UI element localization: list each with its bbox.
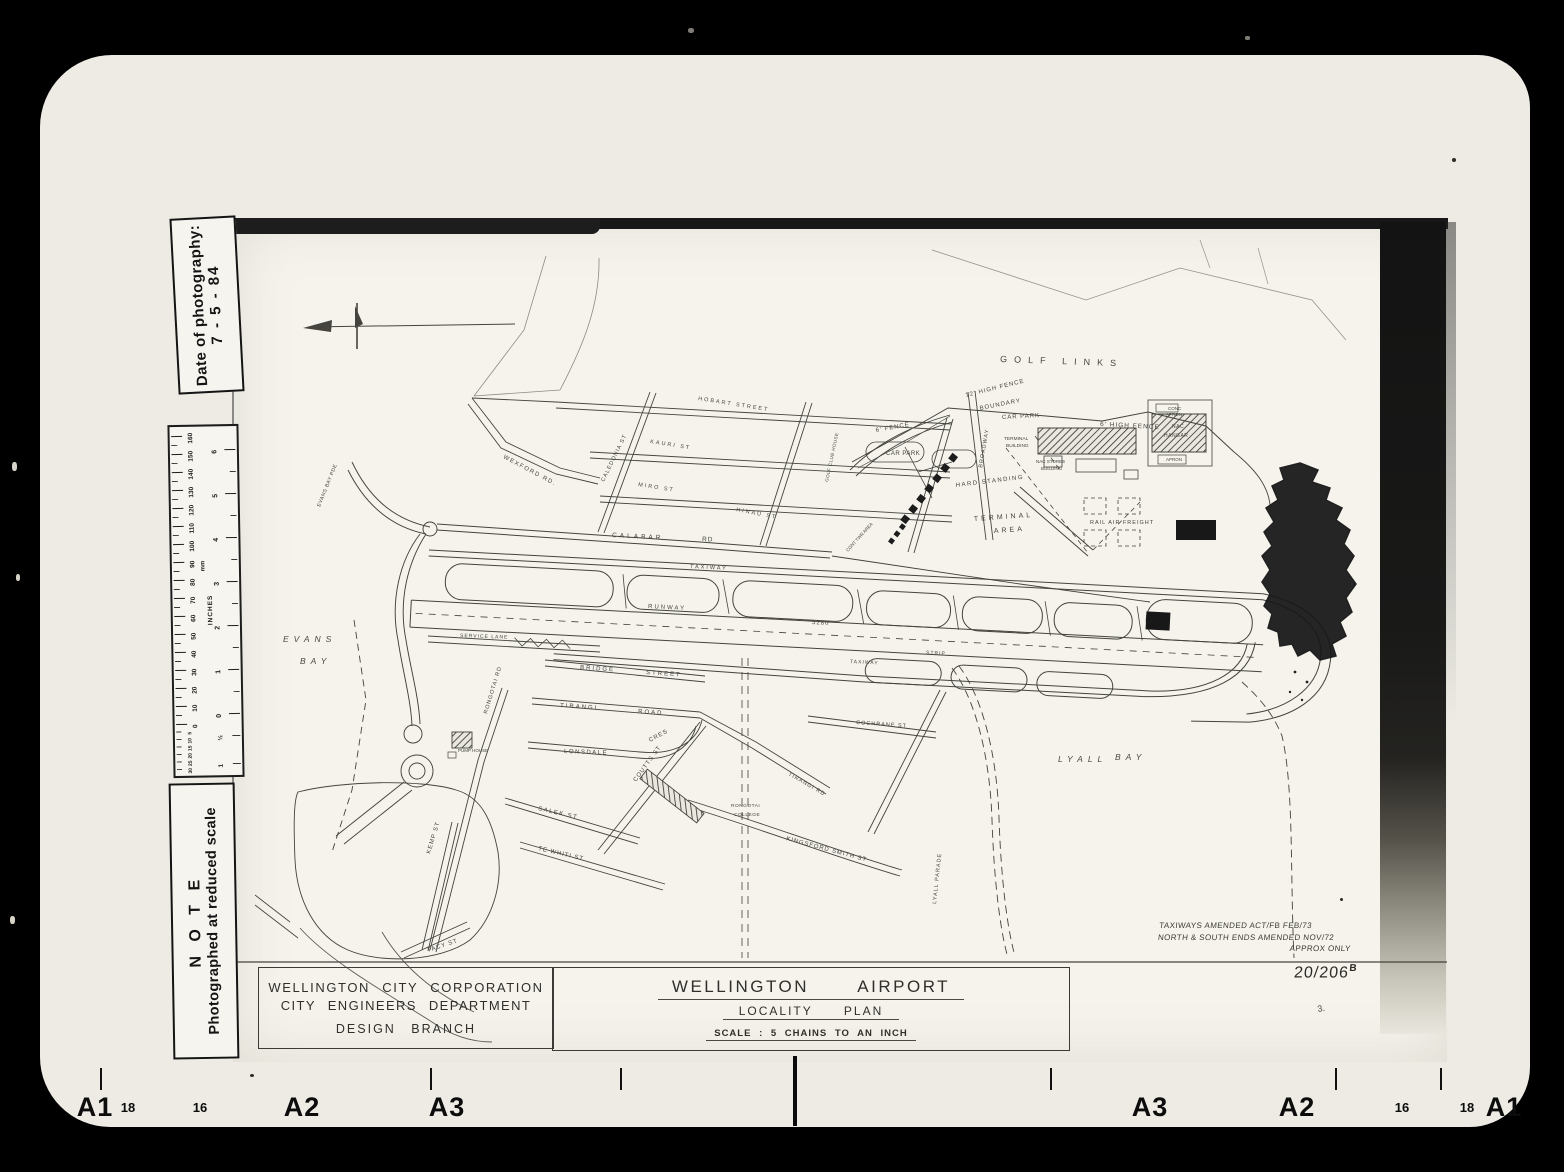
map-label: EVANS (283, 634, 336, 644)
map-label: BUILDING (1041, 466, 1063, 471)
amendment-notes: TAXIWAYS AMENDED ACT/FB FEB/73 NORTH & S… (1156, 920, 1380, 955)
map-label: 3. (1317, 1003, 1326, 1014)
map-label: HANGAR (1164, 433, 1188, 439)
svg-text:50: 50 (191, 632, 198, 640)
drawing-number-revision: B (1349, 963, 1358, 974)
svg-text:6: 6 (211, 450, 218, 454)
map-label: RD (702, 536, 714, 544)
edge-marker-a3: A3 (429, 1092, 466, 1123)
svg-text:120: 120 (188, 504, 195, 515)
fiducial-tick (1050, 1068, 1052, 1090)
drawing-number-main: 20/206 (1293, 964, 1349, 981)
fiducial-tick (620, 1068, 622, 1090)
amendment-note-3: APPROX ONLY (1156, 943, 1377, 955)
film-speck (12, 462, 17, 471)
terminal-area (832, 400, 1270, 631)
scan-speck (1452, 158, 1456, 162)
map-label: CONC (1168, 406, 1182, 411)
map-label: STREET (646, 670, 682, 678)
date-of-photography-sticker: Date of photography: 7 - 5 - 84 (169, 215, 244, 394)
map-label: CAR PARK (886, 451, 920, 457)
note-sticker-text: Photographed at reduced scale (203, 785, 224, 1057)
map-label: CRES (648, 729, 669, 744)
map-label: GOLF LINKS (1000, 354, 1123, 368)
map-label: CONT TWR AREA (845, 522, 874, 553)
svg-text:mm: mm (200, 561, 206, 572)
film-speck (1245, 36, 1250, 40)
film-speck (688, 28, 694, 33)
map-label: PUMP HOUSE (458, 748, 488, 753)
scan-speck (250, 1074, 254, 1077)
runway-taxiways (407, 549, 1334, 728)
film-speck (16, 574, 20, 581)
drawing-number: 20/206B (1293, 963, 1358, 982)
svg-text:60: 60 (190, 614, 197, 622)
map-label: ROAD (638, 709, 664, 717)
map-label: KINGSFORD SMITH ST (785, 836, 867, 863)
map-label: TERMINAL (1004, 436, 1029, 442)
map-label: MIRO ST (638, 482, 675, 494)
map-label: RUNWAY (648, 604, 686, 612)
map-label: AREA (994, 526, 1025, 535)
svg-text:20: 20 (191, 686, 198, 694)
map-label: RONGOTAI (731, 803, 760, 809)
amendment-note-2: NORTH & SOUTH ENDS AMENDED NOV/72 (1157, 932, 1378, 944)
map-label: KAURI ST (650, 439, 692, 451)
map-label: RONGOTAI RD (483, 666, 503, 715)
svg-text:130: 130 (188, 486, 195, 497)
map-label: TIRANGI (560, 703, 599, 712)
svg-text:110: 110 (189, 523, 196, 534)
svg-text:1: 1 (215, 670, 222, 674)
svg-text:2: 2 (214, 626, 221, 630)
edge-marker-16: 16 (193, 1100, 207, 1115)
svg-text:3: 3 (214, 582, 221, 586)
note-sticker: N O T E Photographed at reduced scale (169, 782, 240, 1059)
title-block-title: WELLINGTON AIRPORT LOCALITY PLAN SCALE :… (552, 967, 1070, 1051)
film-speck (10, 916, 15, 924)
svg-text:1: 1 (218, 764, 225, 768)
scan-speck (1340, 898, 1343, 901)
map-label: HARD STANDING (956, 475, 1025, 489)
ruler-graphic: 1601501401301201101009080706050403020100… (167, 423, 245, 778)
map-label: NAC (1172, 424, 1184, 430)
svg-text:140: 140 (188, 468, 195, 479)
svg-text:70: 70 (190, 596, 197, 604)
svg-text:40: 40 (191, 650, 198, 658)
map-label: APRON (1166, 457, 1182, 462)
map-label: LYALL (1058, 754, 1107, 764)
svg-text:4: 4 (213, 538, 220, 542)
map-label: BUILDING (1006, 443, 1029, 449)
drawing-title: WELLINGTON AIRPORT (658, 977, 964, 1000)
edge-marker-a3: A3 (1132, 1092, 1169, 1123)
svg-text:100: 100 (189, 540, 196, 551)
amendment-note-1: TAXIWAYS AMENDED ACT/FB FEB/73 (1159, 920, 1380, 932)
coast-outline-ne (932, 240, 1346, 340)
edge-marker-18: 18 (121, 1100, 135, 1115)
svg-text:25: 25 (188, 760, 194, 766)
org-line-2: CITY ENGINEERS DEPARTMENT (281, 998, 532, 1013)
map-label: TIRANGI RD (787, 772, 826, 798)
map-label: BAY (300, 656, 331, 666)
fiducial-tick (1440, 1068, 1442, 1090)
map-labels-layer: GOLF LINKS12' HIGH FENCEBOUNDARYCAR PARK… (283, 354, 1326, 1014)
map-label: 12' HIGH FENCE (965, 378, 1025, 398)
svg-text:150: 150 (187, 450, 194, 461)
svg-text:5: 5 (187, 732, 193, 735)
svg-text:80: 80 (190, 578, 197, 586)
map-label: TAXIWAY (850, 659, 879, 666)
edge-marker-a2: A2 (284, 1092, 321, 1123)
drawing-subtitle: LOCALITY PLAN (723, 1004, 899, 1020)
map-label: COCHRANE ST (856, 720, 907, 730)
map-label: KEMP ST (426, 821, 441, 855)
org-line-1: WELLINGTON CITY CORPORATION (268, 980, 543, 995)
map-label: SERVICE LANE (460, 633, 508, 641)
center-fiducial-mark (793, 1056, 797, 1126)
svg-text:½: ½ (216, 734, 224, 740)
svg-text:0: 0 (216, 714, 223, 718)
map-label: SALEK ST (538, 806, 579, 821)
svg-text:90: 90 (189, 560, 196, 568)
map-label: CAR PARK (1002, 413, 1040, 421)
north-arrow-icon (303, 303, 515, 349)
org-line-3: DESIGN BRANCH (336, 1022, 476, 1036)
svg-text:0: 0 (192, 724, 199, 728)
edge-marker-18: 18 (1460, 1100, 1474, 1115)
map-label: GOLF CLUB HOUSE (824, 432, 839, 482)
map-label: APRON (1166, 412, 1182, 417)
svg-text:10: 10 (187, 738, 193, 744)
svg-text:15: 15 (188, 745, 194, 751)
map-label: STRIP (926, 650, 946, 657)
map-label: BRIDGE (580, 665, 615, 673)
coast-rocks (1262, 463, 1356, 701)
svg-text:160: 160 (187, 432, 194, 443)
map-label: LONSDALE (564, 749, 608, 757)
map-label: COLLEGE (734, 812, 760, 818)
svg-text:10: 10 (192, 704, 199, 712)
map-label: 5280 (812, 620, 830, 627)
map-label: TAXIWAY (690, 564, 728, 572)
scale-ruler: 1601501401301201101009080706050403020100… (167, 423, 245, 778)
edge-marker-16: 16 (1395, 1100, 1409, 1115)
svg-text:30: 30 (188, 768, 194, 774)
svg-text:5: 5 (212, 494, 219, 498)
svg-text:30: 30 (191, 668, 198, 676)
edge-marker-a1: A1 (77, 1092, 114, 1123)
map-label: NAC STORES (1036, 459, 1065, 464)
svg-text:20: 20 (188, 753, 194, 759)
evans-bay-roads (332, 462, 600, 852)
hataitai-roads (474, 256, 599, 396)
fiducial-tick (1335, 1068, 1337, 1090)
title-block-organisation: WELLINGTON CITY CORPORATION CITY ENGINEE… (258, 967, 554, 1049)
edge-marker-a2: A2 (1279, 1092, 1316, 1123)
svg-text:INCHES: INCHES (207, 595, 215, 626)
map-label: BAY (1115, 752, 1146, 762)
map-label: RAIL AIR FREIGHT (1090, 520, 1154, 526)
drawing-scale: SCALE : 5 CHAINS TO AN INCH (706, 1028, 916, 1041)
calabar-road (437, 524, 832, 558)
edge-marker-a1: A1 (1486, 1092, 1523, 1123)
map-label: CALABAR (612, 532, 664, 542)
fiducial-tick (430, 1068, 432, 1090)
fiducial-tick (100, 1068, 102, 1090)
map-label: CALEDONIA ST (600, 433, 628, 482)
map-label: LYALL PARADE (932, 853, 943, 905)
map-label: EVANS BAY PDE (316, 463, 339, 508)
map-label: BOUNDARY (979, 398, 1021, 412)
rongotai-street-grid (468, 391, 993, 553)
